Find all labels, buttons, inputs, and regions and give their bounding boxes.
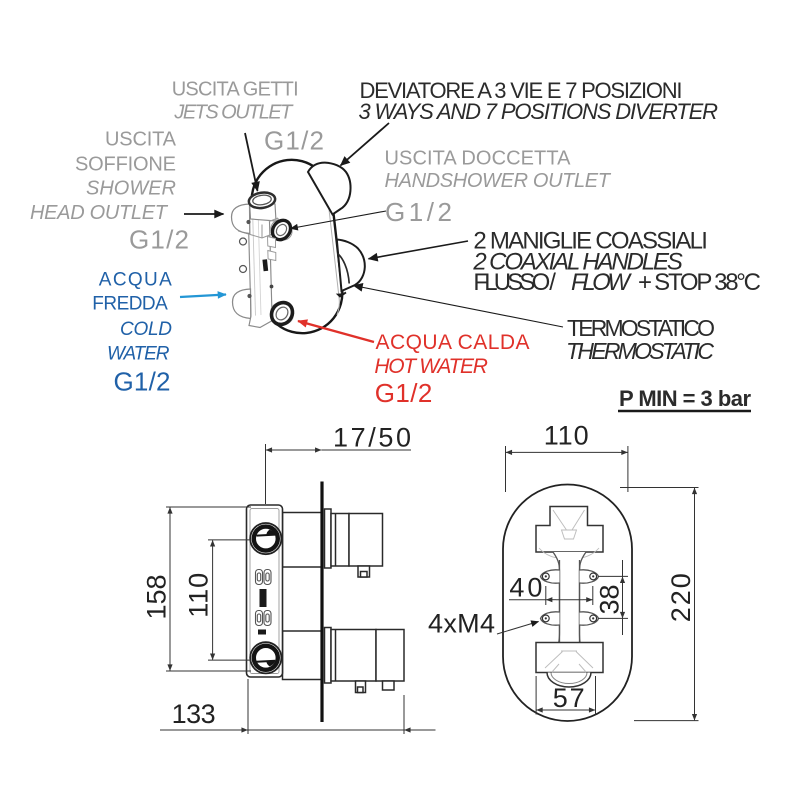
svg-text:158: 158 [142, 575, 172, 620]
svg-text:ACQUA CALDA: ACQUA CALDA [376, 331, 530, 354]
svg-text:COLD: COLD [120, 319, 172, 340]
svg-text:USCITA GETTI: USCITA GETTI [172, 78, 299, 100]
svg-text:38: 38 [595, 585, 625, 615]
svg-text:220: 220 [666, 573, 696, 622]
svg-text:17/50: 17/50 [333, 423, 411, 453]
svg-text:110: 110 [184, 573, 214, 618]
svg-text:133: 133 [172, 699, 216, 729]
svg-text:G1/2: G1/2 [385, 197, 452, 227]
svg-text:P MIN = 3 bar: P MIN = 3 bar [619, 386, 751, 411]
svg-text:ACQUA: ACQUA [99, 269, 172, 290]
svg-text:G1/2: G1/2 [114, 367, 171, 397]
svg-text:SHOWER: SHOWER [86, 178, 176, 200]
svg-text:G1/2: G1/2 [129, 224, 189, 254]
svg-text:HEAD OUTLET: HEAD OUTLET [30, 202, 169, 224]
svg-text:FREDDA: FREDDA [92, 294, 168, 315]
svg-text:JETS OUTLET: JETS OUTLET [173, 101, 294, 123]
svg-text:4xM4: 4xM4 [428, 609, 495, 639]
svg-text:110: 110 [544, 421, 589, 451]
svg-text:SOFFIONE: SOFFIONE [75, 153, 176, 175]
svg-text:57: 57 [553, 683, 585, 713]
svg-text:G1/2: G1/2 [264, 126, 324, 156]
svg-text:USCITA: USCITA [105, 129, 177, 151]
svg-text:HOT WATER: HOT WATER [374, 355, 488, 378]
svg-text:WATER: WATER [107, 343, 170, 364]
svg-text:USCITA DOCCETTA: USCITA DOCCETTA [385, 148, 572, 170]
svg-text:FLOW: FLOW [571, 269, 632, 296]
svg-text:HANDSHOWER OUTLET: HANDSHOWER OUTLET [385, 170, 612, 192]
svg-text:3 WAYS AND 7 POSITIONS DIVERT: 3 WAYS AND 7 POSITIONS DIVERTER [359, 99, 719, 124]
svg-text:THERMOSTATIC: THERMOSTATIC [566, 338, 714, 364]
svg-text:G1/2: G1/2 [375, 378, 433, 408]
svg-text:FLUSSO /: FLUSSO / [473, 269, 556, 296]
svg-text:+ STOP 38°C: + STOP 38°C [638, 269, 761, 296]
